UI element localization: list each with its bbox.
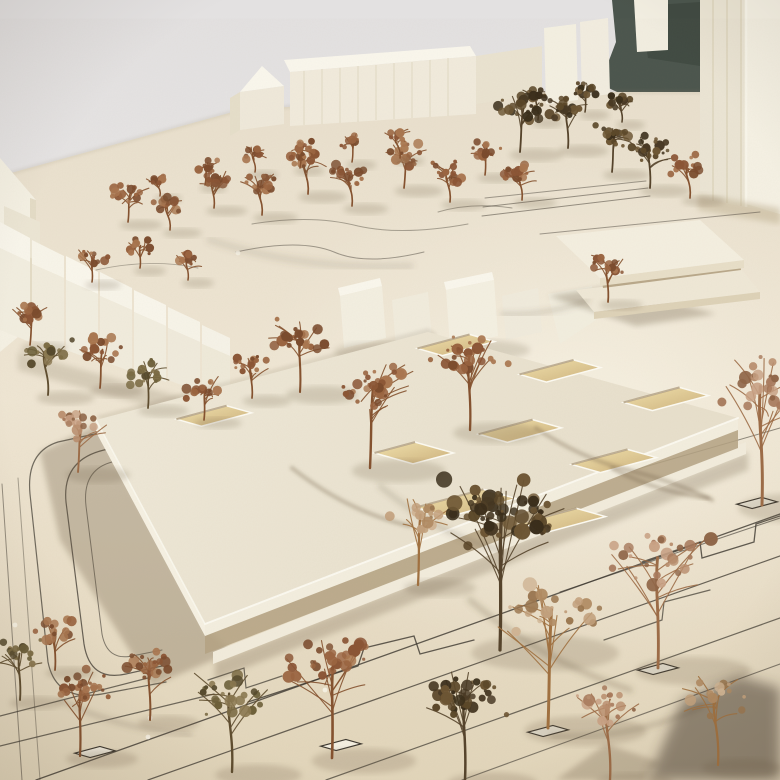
architectural-model-photo: Photograph of a cream-coloured architect… (0, 0, 780, 780)
model-photo-canvas (0, 0, 780, 780)
photo-grain-overlay (0, 0, 780, 780)
